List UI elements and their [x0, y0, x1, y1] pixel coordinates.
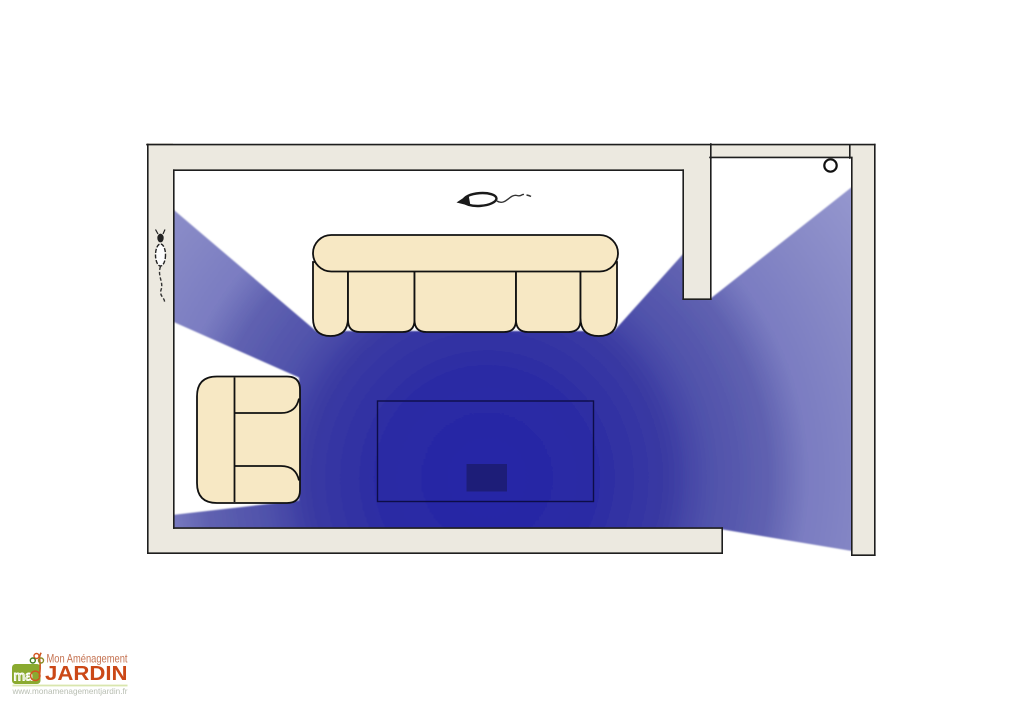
svg-text:JARDIN: JARDIN: [45, 662, 128, 685]
svg-text:www.monamenagementjardin.fr: www.monamenagementjardin.fr: [12, 686, 128, 696]
